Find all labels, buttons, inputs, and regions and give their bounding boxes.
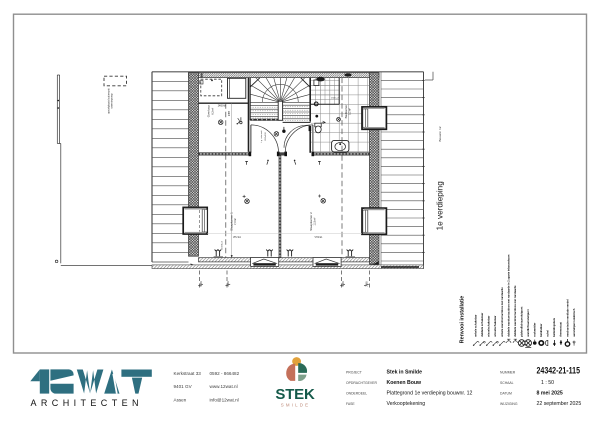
svg-text:VH2 E1: VH2 E1 xyxy=(233,237,242,239)
svg-text:WIJZIGING: WIJZIGING xyxy=(500,402,518,406)
svg-text:warmtepomp: warmtepomp xyxy=(110,93,114,109)
svg-text:dubbele schakelaar: dubbele schakelaar xyxy=(480,313,484,337)
svg-text:600x600: 600x600 xyxy=(265,132,267,141)
svg-text:5265: 5265 xyxy=(200,281,203,287)
svg-text:Bouwnr. 12: Bouwnr. 12 xyxy=(438,126,442,141)
svg-text:5,2 m²: 5,2 m² xyxy=(348,108,351,115)
svg-text:mechanische ventilatie ventiel: mechanische ventilatie ventiel xyxy=(565,299,569,337)
svg-text:22 september 2025: 22 september 2025 xyxy=(537,401,582,407)
svg-text:t.p. wtw-unit: t.p. wtw-unit xyxy=(260,130,263,142)
svg-text:1 : 50: 1 : 50 xyxy=(541,380,554,386)
svg-text:1e verdieping: 1e verdieping xyxy=(436,181,445,231)
svg-text:wisselschakelaar: wisselschakelaar xyxy=(493,316,497,337)
svg-text:NUMMER: NUMMER xyxy=(500,370,516,374)
svg-text:STEK: STEK xyxy=(275,386,315,403)
svg-text:aansluitpunt elektrisch: aansluitpunt elektrisch xyxy=(572,308,576,337)
svg-text:plafondlichtaansluitpunt: plafondlichtaansluitpunt xyxy=(519,307,523,337)
svg-text:1500+vl: 1500+vl xyxy=(331,98,339,100)
svg-text:VH2 E1: VH2 E1 xyxy=(315,237,324,239)
svg-text:Badkamer: Badkamer xyxy=(344,105,348,119)
svg-text:beldrukker: beldrukker xyxy=(539,324,543,337)
svg-text:OPDRACHTGEVER: OPDRACHTGEVER xyxy=(346,381,377,385)
svg-text:11,5 m²: 11,5 m² xyxy=(314,217,317,225)
svg-text:Plattegrond 1e verdieping bouw: Plattegrond 1e verdieping bouwnr. 12 xyxy=(387,390,473,396)
svg-text:Renvooi installatie: Renvooi installatie xyxy=(460,296,466,344)
svg-text:8 mei 2025: 8 mei 2025 xyxy=(537,390,563,396)
svg-text:belleidingsbuis: belleidingsbuis xyxy=(552,317,556,336)
svg-text:Koenen Bouw: Koenen Bouw xyxy=(387,380,423,386)
svg-text:Kerkstraat 33: Kerkstraat 33 xyxy=(174,371,202,376)
svg-text:Verkooptekening: Verkooptekening xyxy=(387,401,426,407)
svg-text:enkele wandcontactdoos met ran: enkele wandcontactdoos met randaarde xyxy=(500,287,504,337)
svg-text:dubbele wandcontactdoos met ra: dubbele wandcontactdoos met randaarde xyxy=(513,285,517,337)
svg-text:9401 GV: 9401 GV xyxy=(174,384,193,389)
svg-text:Assen: Assen xyxy=(174,397,187,402)
svg-text:Slaapkamer 2: Slaapkamer 2 xyxy=(309,212,313,231)
svg-text:2465: 2465 xyxy=(366,281,369,287)
svg-text:wisselschakelaar: wisselschakelaar xyxy=(487,316,491,337)
svg-text:ARCHITECTEN: ARCHITECTEN xyxy=(31,398,143,408)
svg-text:SMILDE: SMILDE xyxy=(281,402,311,407)
svg-text:±1500+vl: ±1500+vl xyxy=(222,241,224,250)
svg-text:schel: schel xyxy=(546,330,550,337)
svg-text:info@12wat.nl: info@12wat.nl xyxy=(210,397,239,402)
svg-text:Slaapkamer 1: Slaapkamer 1 xyxy=(229,212,233,231)
svg-text:2465 kk: 2465 kk xyxy=(218,106,227,108)
svg-text:DATUM: DATUM xyxy=(500,391,512,395)
svg-text:0592 - 866482: 0592 - 866482 xyxy=(210,371,240,376)
svg-text:Overloop: Overloop xyxy=(207,105,211,118)
svg-text:PROJECT: PROJECT xyxy=(346,370,362,374)
svg-text:7,0 m²: 7,0 m² xyxy=(234,218,237,225)
svg-text:6,3 m²: 6,3 m² xyxy=(211,108,214,115)
svg-text:2455: 2455 xyxy=(229,110,231,116)
svg-text:SCHAAL: SCHAAL xyxy=(500,381,514,385)
svg-text:2465: 2465 xyxy=(227,281,230,287)
svg-text:FASE: FASE xyxy=(346,402,355,406)
svg-text:dubbele wandcontactdoos met ra: dubbele wandcontactdoos met randaarde in… xyxy=(506,254,510,337)
svg-text:Stek in Smilde: Stek in Smilde xyxy=(387,369,423,375)
svg-text:24342-21-115: 24342-21-115 xyxy=(537,365,581,375)
svg-text:ONDERDEEL: ONDERDEEL xyxy=(346,391,367,395)
svg-text:enkele schakelaar: enkele schakelaar xyxy=(474,315,478,337)
svg-text:www.12wat.nl: www.12wat.nl xyxy=(210,384,238,389)
svg-text:5265: 5265 xyxy=(342,281,345,287)
svg-text:thermostaat: thermostaat xyxy=(559,322,563,337)
svg-text:rookmelder: rookmelder xyxy=(533,323,537,337)
svg-text:wandlichtaansluitpunt: wandlichtaansluitpunt xyxy=(526,309,530,337)
